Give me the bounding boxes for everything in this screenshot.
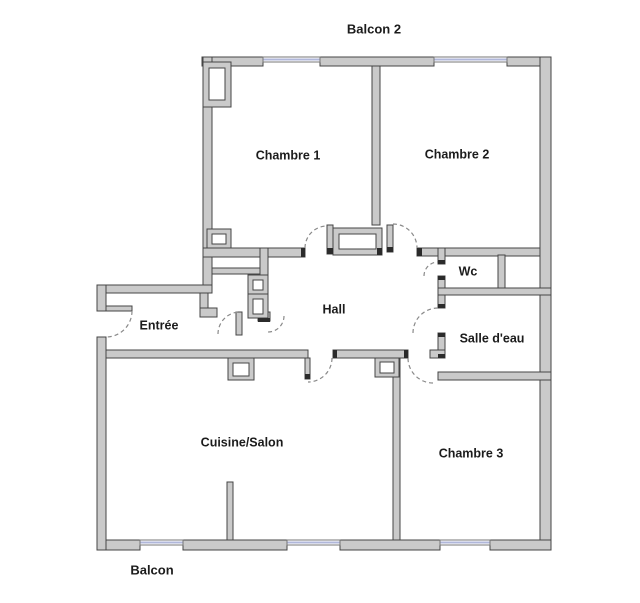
wall: [106, 306, 132, 311]
wall: [236, 312, 242, 335]
wall-end-cap: [404, 350, 408, 358]
wall: [268, 248, 305, 257]
wall: [97, 285, 212, 293]
floorplan-svg: Balcon 2Chambre 1Chambre 2WcHallEntréeSa…: [0, 0, 640, 603]
wall: [200, 308, 217, 317]
window-glass-line: [288, 542, 340, 544]
room-label-chambre2: Chambre 2: [425, 147, 490, 161]
room-label-entree: Entrée: [140, 318, 179, 332]
window-glass-line: [435, 59, 507, 61]
wall: [490, 540, 551, 550]
closet-box-inner: [339, 234, 376, 249]
wall: [97, 285, 106, 311]
wall: [212, 268, 260, 274]
wall: [540, 57, 551, 550]
window-glass-line: [441, 542, 490, 544]
wall-end-cap: [258, 318, 270, 322]
wall: [227, 482, 233, 540]
wall: [498, 255, 505, 288]
wall: [203, 248, 268, 257]
closet-box-inner: [209, 68, 225, 100]
wall: [200, 293, 208, 308]
room-label-hall: Hall: [323, 302, 346, 316]
closet-box-inner: [253, 280, 263, 290]
window-glass-line: [141, 542, 183, 544]
wall: [438, 372, 551, 380]
wall-end-cap: [387, 247, 393, 252]
room-label-balcon: Balcon: [130, 562, 173, 577]
wall-end-cap: [327, 248, 333, 254]
wall: [340, 540, 440, 550]
wall-end-cap: [438, 333, 445, 337]
window-glass-line: [264, 59, 320, 61]
wall-end-cap: [417, 248, 422, 256]
wall: [320, 57, 434, 66]
closet-box-inner: [233, 363, 249, 376]
room-label-wc: Wc: [459, 264, 478, 278]
wall-end-cap: [301, 248, 305, 257]
room-label-salle-deau: Salle d'eau: [460, 331, 525, 345]
wall-end-cap: [377, 248, 382, 255]
wall-end-cap: [333, 350, 337, 358]
closet-box-inner: [212, 234, 226, 244]
floorplan: Balcon 2Chambre 1Chambre 2WcHallEntréeSa…: [0, 0, 640, 603]
wall: [183, 540, 287, 550]
wall: [97, 337, 106, 550]
room-label-chambre3: Chambre 3: [439, 446, 504, 460]
wall-end-cap: [438, 304, 445, 308]
wall-end-cap: [438, 276, 445, 280]
wall: [372, 66, 380, 225]
closet-box-inner: [380, 362, 394, 373]
wall: [106, 350, 308, 358]
room-label-cuisine-salon: Cuisine/Salon: [201, 435, 284, 449]
wall: [393, 358, 400, 540]
closet-box-inner: [253, 299, 263, 314]
wall-end-cap: [305, 374, 310, 379]
room-label-balcon2: Balcon 2: [347, 21, 401, 36]
wall: [438, 288, 551, 295]
wall: [417, 248, 540, 256]
wall-end-cap: [438, 354, 445, 358]
wall-end-cap: [438, 260, 445, 264]
room-label-chambre1: Chambre 1: [256, 148, 321, 162]
wall: [333, 350, 408, 358]
